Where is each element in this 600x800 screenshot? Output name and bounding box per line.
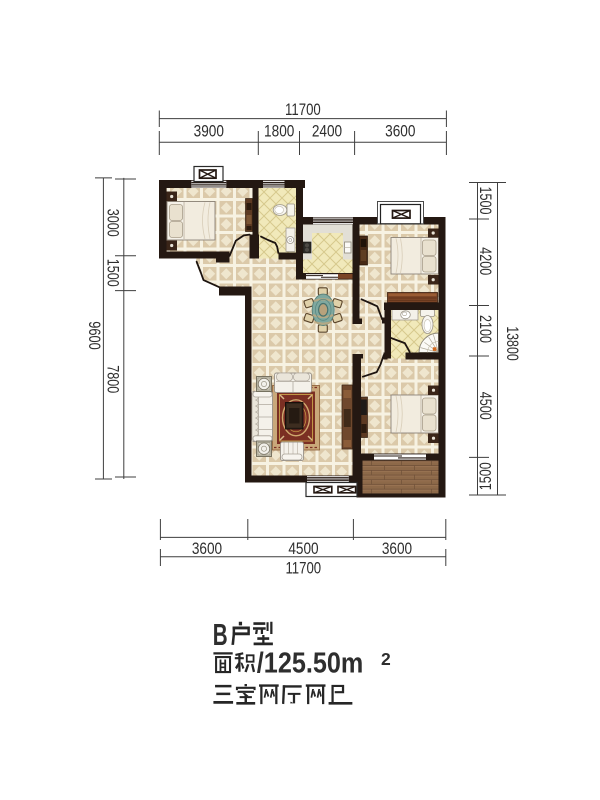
svg-text:4200: 4200 [476, 247, 494, 275]
svg-text:3900: 3900 [194, 123, 224, 141]
svg-text:2400: 2400 [312, 123, 342, 141]
svg-text:B: B [213, 618, 228, 652]
svg-text:/125.50m: /125.50m [257, 647, 364, 679]
svg-text:11700: 11700 [285, 560, 321, 578]
svg-text:4500: 4500 [476, 392, 494, 420]
svg-text:1500: 1500 [477, 462, 495, 490]
svg-text:9600: 9600 [85, 321, 103, 350]
svg-text:3600: 3600 [192, 540, 222, 558]
svg-text:2100: 2100 [476, 315, 494, 343]
svg-text:1500: 1500 [104, 259, 122, 287]
svg-text:2: 2 [381, 649, 391, 669]
svg-text:1500: 1500 [476, 187, 494, 215]
svg-text:3000: 3000 [104, 209, 122, 237]
svg-text:7800: 7800 [104, 365, 122, 393]
svg-text:3600: 3600 [382, 540, 412, 558]
svg-text:3600: 3600 [385, 123, 415, 141]
svg-text:13800: 13800 [503, 326, 521, 361]
svg-text:1800: 1800 [264, 123, 294, 141]
svg-text:11700: 11700 [285, 101, 321, 119]
svg-text:4500: 4500 [288, 540, 318, 558]
